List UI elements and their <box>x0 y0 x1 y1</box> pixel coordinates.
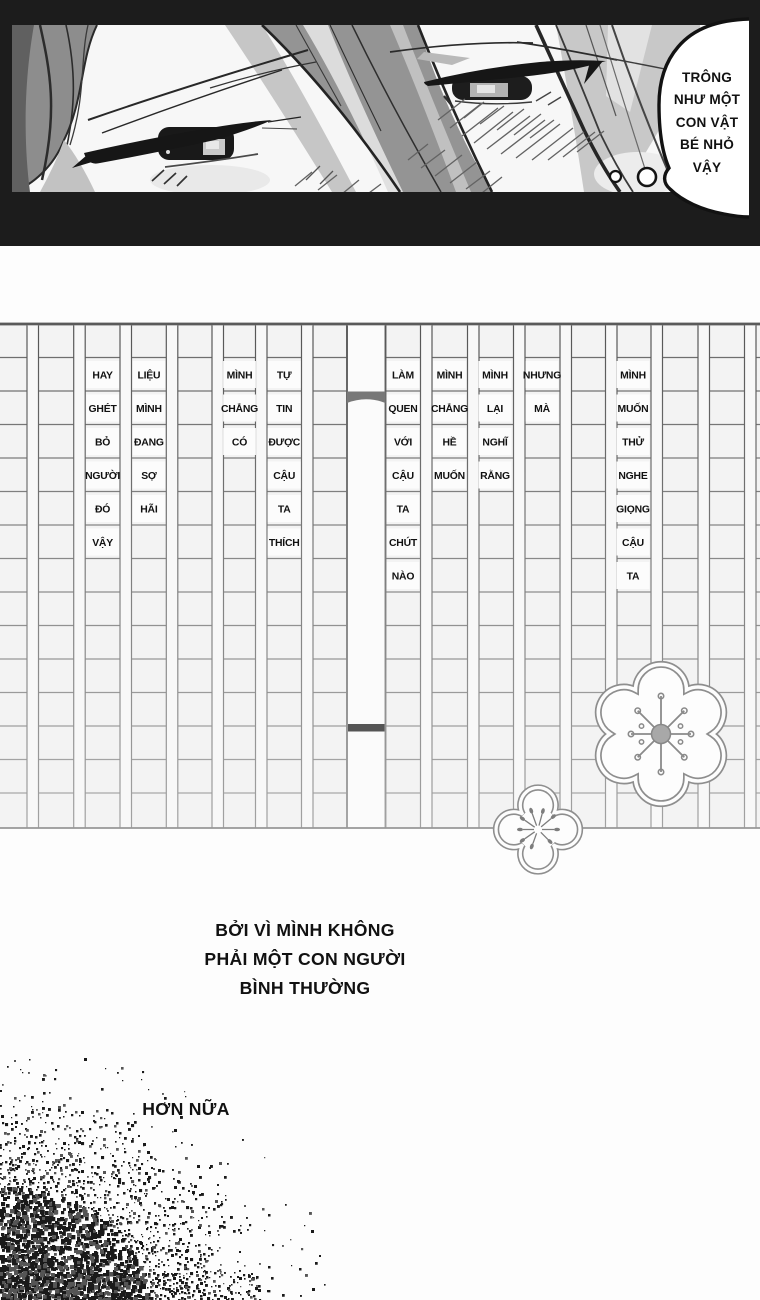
svg-text:CẬU: CẬU <box>622 536 644 549</box>
svg-text:NGƯỜI: NGƯỜI <box>85 469 120 482</box>
svg-text:TỰ: TỰ <box>277 371 292 382</box>
svg-text:LẠI: LẠI <box>487 404 503 415</box>
svg-text:BÌNH THƯỜNG: BÌNH THƯỜNG <box>240 977 371 998</box>
svg-text:MUỐN: MUỐN <box>618 401 649 415</box>
svg-text:ĐƯỢC: ĐƯỢC <box>268 438 300 449</box>
svg-text:HAY: HAY <box>92 371 113 382</box>
svg-text:CÓ: CÓ <box>232 436 247 449</box>
svg-text:NHƯ MỘT: NHƯ MỘT <box>674 92 741 107</box>
svg-text:MÌNH: MÌNH <box>136 402 162 415</box>
svg-text:BỞI VÌ MÌNH KHÔNG: BỞI VÌ MÌNH KHÔNG <box>215 919 394 940</box>
svg-text:LÀM: LÀM <box>392 369 414 382</box>
svg-text:VẬY: VẬY <box>693 160 722 175</box>
svg-text:MUỐN: MUỐN <box>434 468 465 482</box>
svg-text:ĐANG: ĐANG <box>134 438 164 449</box>
svg-text:CẬU: CẬU <box>392 469 414 482</box>
svg-text:MÌNH: MÌNH <box>620 369 646 382</box>
svg-text:GHÉT: GHÉT <box>89 402 118 415</box>
svg-text:CHẲNG: CHẲNG <box>221 402 258 415</box>
svg-text:NGHĨ: NGHĨ <box>482 436 508 449</box>
svg-text:TIN: TIN <box>276 404 292 415</box>
svg-text:MÌNH: MÌNH <box>227 369 253 382</box>
svg-text:TA: TA <box>278 505 291 516</box>
svg-text:HƠN NỮA: HƠN NỮA <box>142 1098 229 1119</box>
svg-text:HÃI: HÃI <box>140 503 158 516</box>
svg-text:GIỌNG: GIỌNG <box>616 505 650 516</box>
svg-text:SỢ: SỢ <box>141 471 157 482</box>
svg-text:VẬY: VẬY <box>92 536 113 549</box>
svg-text:MÀ: MÀ <box>534 402 550 415</box>
svg-text:VỚI: VỚI <box>394 436 412 449</box>
svg-text:TA: TA <box>627 572 640 583</box>
svg-text:LIỆU: LIỆU <box>137 369 160 382</box>
svg-text:QUEN: QUEN <box>388 404 417 415</box>
svg-text:MÌNH: MÌNH <box>437 369 463 382</box>
svg-text:CON VẬT: CON VẬT <box>676 115 739 130</box>
svg-text:CHÚT: CHÚT <box>389 536 418 549</box>
svg-text:NHƯNG: NHƯNG <box>523 371 561 382</box>
svg-text:THỬ: THỬ <box>622 436 644 449</box>
svg-text:BÉ NHỎ: BÉ NHỎ <box>680 137 734 152</box>
svg-text:PHẢI MỘT CON NGƯỜI: PHẢI MỘT CON NGƯỜI <box>204 948 405 969</box>
svg-text:NGHE: NGHE <box>618 471 647 482</box>
svg-text:NÀO: NÀO <box>392 570 415 583</box>
svg-text:TRÔNG: TRÔNG <box>682 70 732 85</box>
svg-text:CHẲNG: CHẲNG <box>431 402 468 415</box>
svg-text:CẬU: CẬU <box>273 469 295 482</box>
svg-text:HỀ: HỀ <box>442 436 456 449</box>
svg-text:MÌNH: MÌNH <box>482 369 508 382</box>
svg-text:BỎ: BỎ <box>95 436 110 449</box>
svg-text:THÍCH: THÍCH <box>269 536 300 549</box>
svg-text:TA: TA <box>397 505 410 516</box>
svg-text:RẰNG: RẰNG <box>480 469 510 482</box>
svg-text:ĐÓ: ĐÓ <box>95 503 110 516</box>
